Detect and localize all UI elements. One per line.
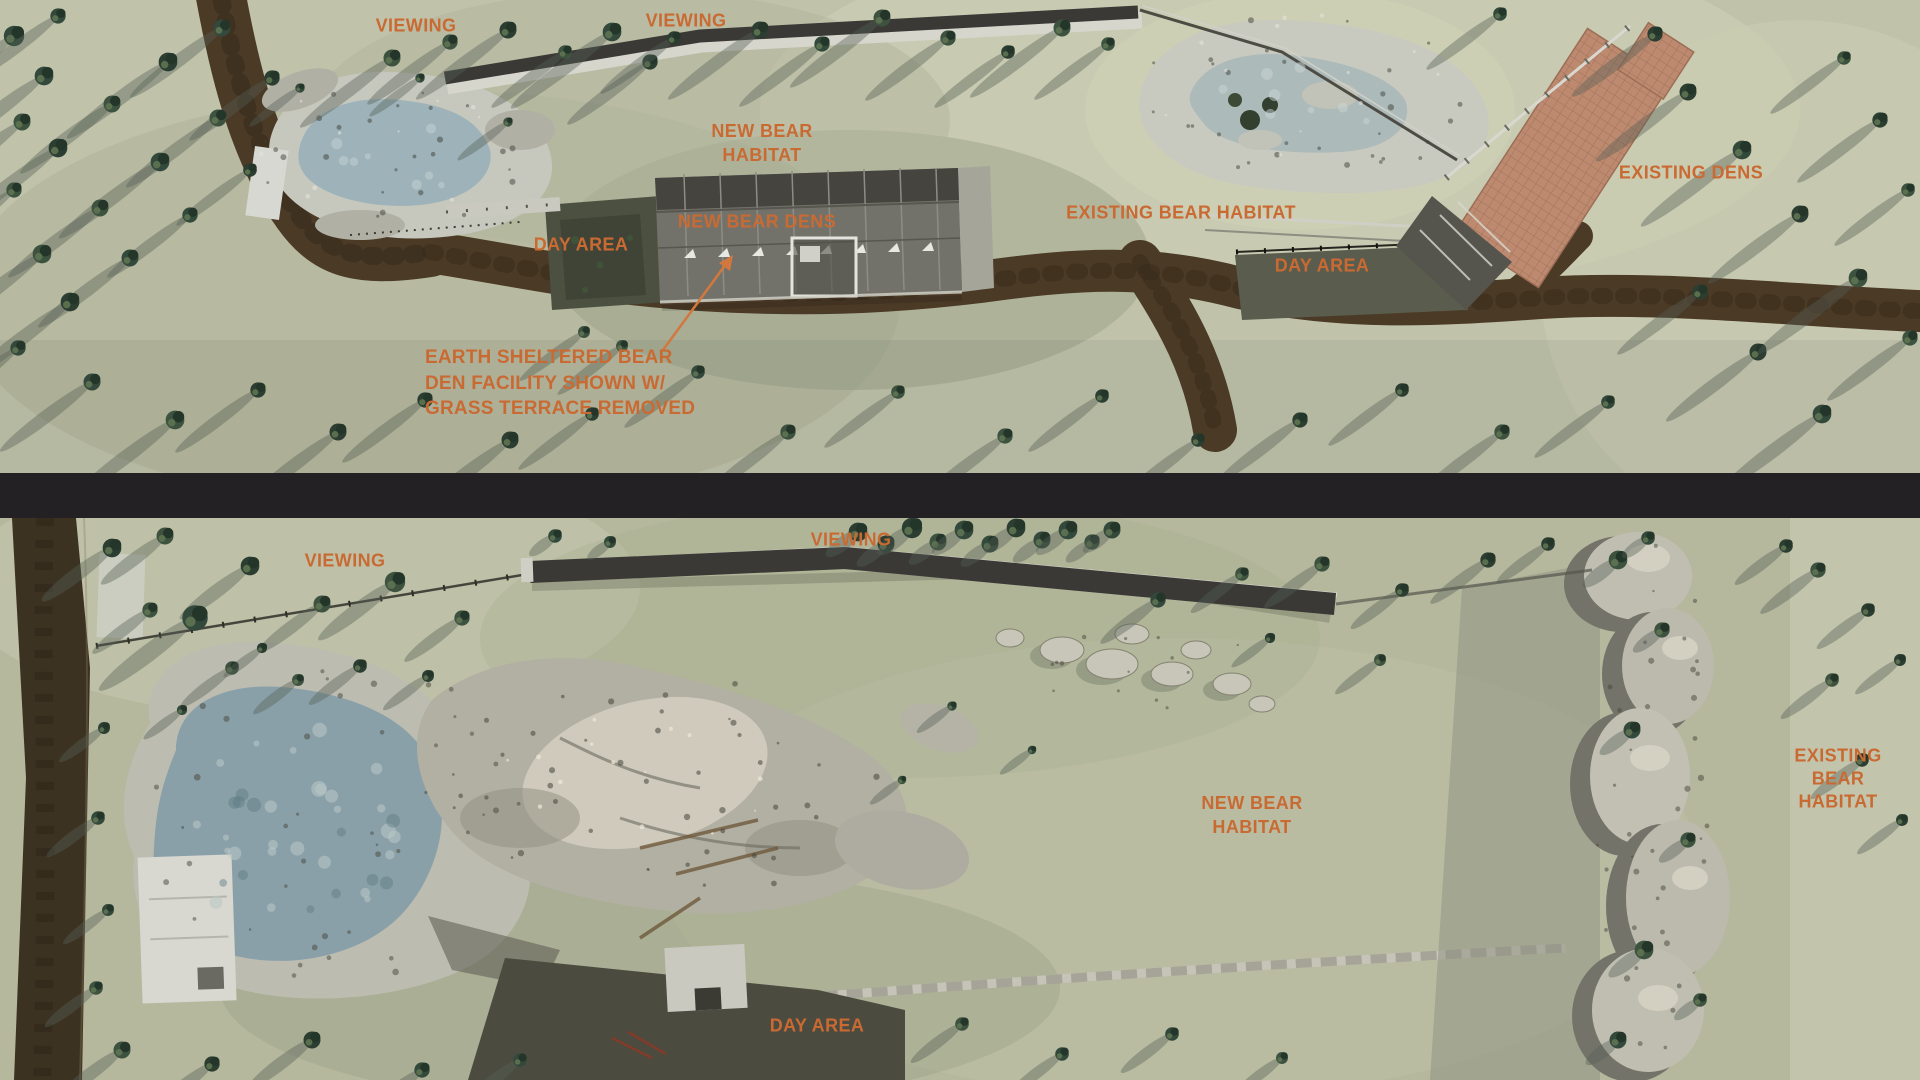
new-bear-dens-building [655, 166, 994, 308]
panel-divider [0, 473, 1920, 518]
top-panel-rendering [0, 0, 1920, 473]
top-right-pond [1085, 0, 1515, 230]
stage: VIEWING VIEWING NEW BEAR HABITAT NEW BEA… [0, 0, 1920, 1080]
bottom-den-building [138, 854, 237, 1003]
bottom-panel-rendering [0, 518, 1920, 1080]
